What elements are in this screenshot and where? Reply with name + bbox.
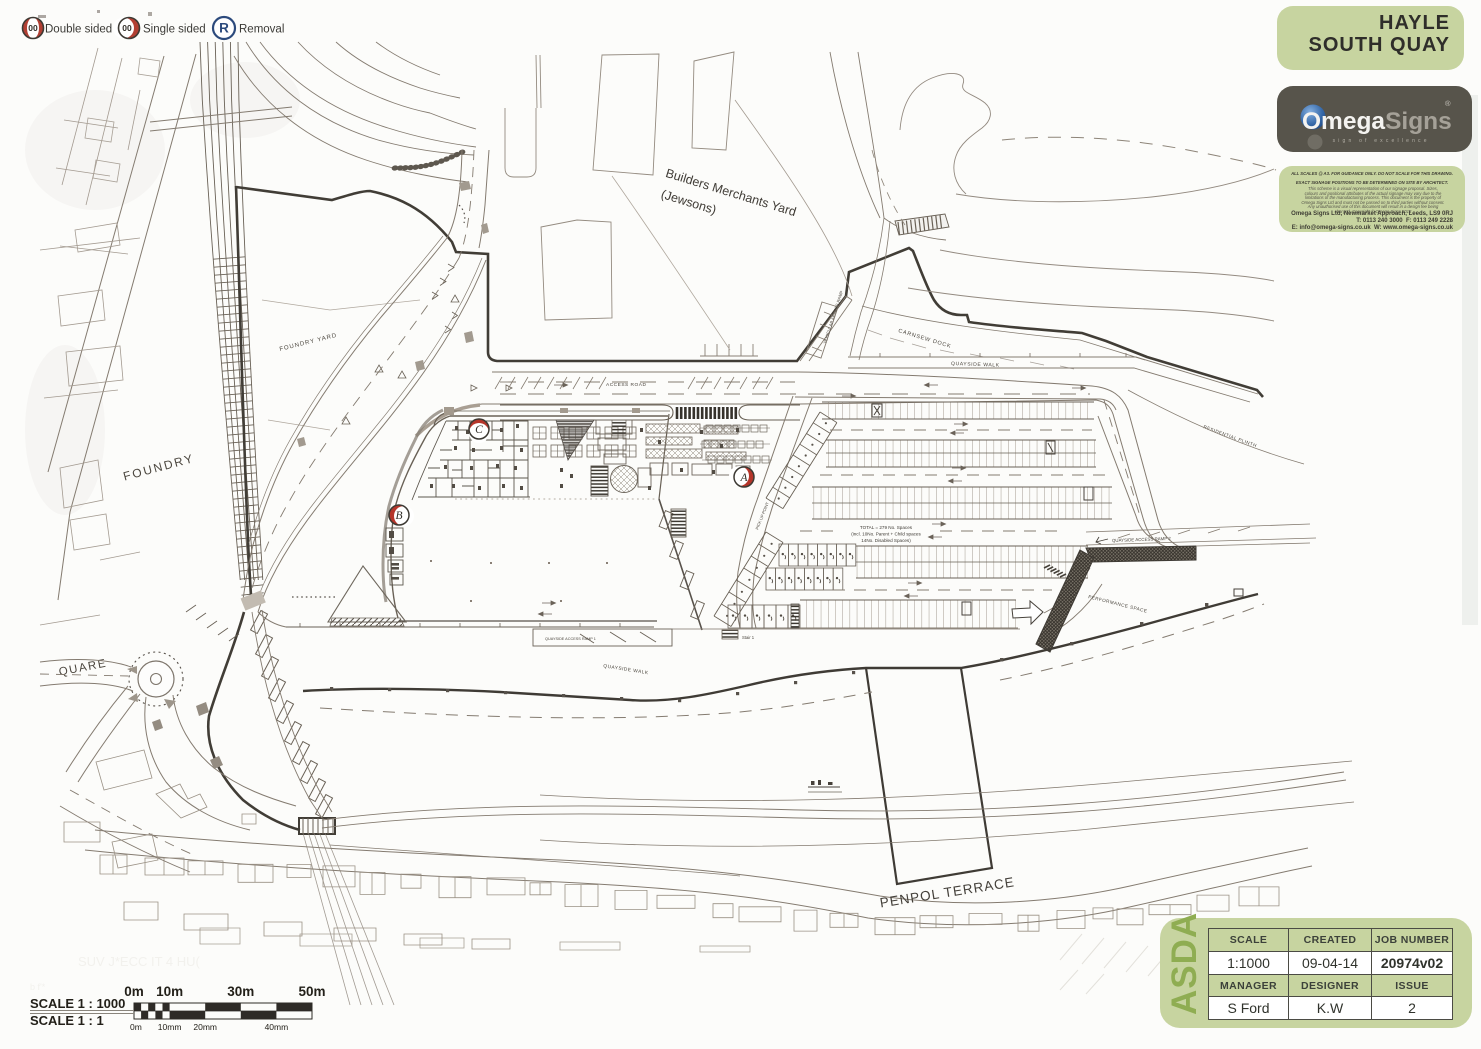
svg-text:Single sided: Single sided [143, 24, 206, 36]
svg-text:FOUNDRY: FOUNDRY [122, 451, 196, 483]
svg-text:PENPOL TERRACE: PENPOL TERRACE [879, 874, 1016, 910]
svg-text:®: ® [1445, 99, 1451, 108]
svg-text:10m: 10m [156, 984, 183, 999]
svg-text:30m: 30m [227, 984, 254, 999]
svg-text:00: 00 [122, 23, 132, 33]
svg-text:Stair 1: Stair 1 [742, 635, 755, 640]
svg-text:PICK UP POINT: PICK UP POINT [754, 501, 770, 531]
svg-text:00: 00 [28, 23, 38, 33]
svg-text:SUV J*ECC IT 4 HU(: SUV J*ECC IT 4 HU( [78, 954, 201, 969]
svg-text:A: A [739, 472, 748, 484]
svg-text:C: C [475, 424, 483, 436]
svg-text:VEHICULAR ACCESS RAMP: VEHICULAR ACCESS RAMP [822, 290, 844, 344]
svg-text:(incl. 10No. Parent + Child sp: (incl. 10No. Parent + Child spaces [851, 532, 921, 537]
svg-text:RESIDENTIAL PLINTH: RESIDENTIAL PLINTH [1203, 424, 1258, 448]
svg-text:14No. Disabled Spaces): 14No. Disabled Spaces) [861, 538, 911, 543]
svg-text:0m: 0m [124, 984, 144, 999]
svg-text:QUAYSIDE WALK: QUAYSIDE WALK [951, 361, 1000, 369]
svg-text:Removal: Removal [239, 24, 284, 36]
svg-text:OmegaSigns: OmegaSigns [1302, 108, 1452, 135]
svg-text:TOTAL = 279 No. Spaces: TOTAL = 279 No. Spaces [860, 525, 913, 530]
svg-text:QUAYSIDE WALK: QUAYSIDE WALK [603, 663, 649, 676]
svg-text:QUAYSIDE ACCESS RAMP 2: QUAYSIDE ACCESS RAMP 2 [1112, 536, 1172, 543]
svg-text:B: B [395, 510, 402, 522]
svg-text:ACCESS ROAD: ACCESS ROAD [606, 382, 646, 388]
svg-text:R: R [219, 21, 229, 36]
svg-text:50m: 50m [298, 984, 325, 999]
svg-text:40mm: 40mm [265, 1022, 289, 1032]
svg-text:0m: 0m [130, 1022, 142, 1032]
svg-text:Double sided: Double sided [45, 24, 112, 36]
svg-text:FOUNDRY YARD: FOUNDRY YARD [279, 333, 338, 353]
svg-text:s i g n o f e x c e l l e: s i g n o f e x c e l l e n c e [1333, 138, 1428, 144]
svg-text:CARNSEW DOCK: CARNSEW DOCK [897, 328, 951, 350]
svg-text:b f'*: b f'* [30, 982, 46, 992]
svg-text:PERFORMANCE SPACE: PERFORMANCE SPACE [1088, 594, 1148, 614]
svg-text:10mm: 10mm [158, 1022, 182, 1032]
svg-text:QUAYSIDE ACCESS RAMP 1: QUAYSIDE ACCESS RAMP 1 [545, 637, 596, 641]
svg-text:20mm: 20mm [193, 1022, 217, 1032]
